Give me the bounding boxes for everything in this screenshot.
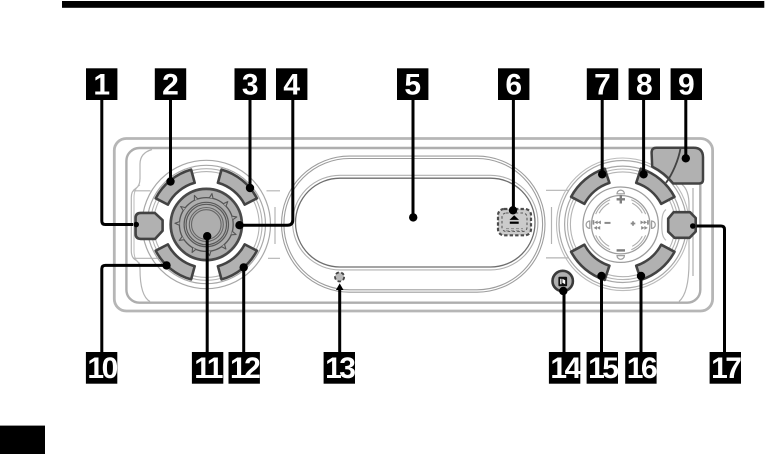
svg-text:9: 9 xyxy=(678,68,695,101)
svg-text:5: 5 xyxy=(404,68,421,101)
svg-text:13: 13 xyxy=(325,352,355,385)
svg-text:8: 8 xyxy=(636,68,653,101)
svg-text:6: 6 xyxy=(505,68,522,101)
svg-text:7: 7 xyxy=(594,68,611,101)
svg-text:11: 11 xyxy=(194,352,223,385)
svg-text:17: 17 xyxy=(711,352,741,385)
svg-text:3: 3 xyxy=(242,68,259,101)
svg-text:10: 10 xyxy=(87,352,117,385)
svg-text:4: 4 xyxy=(283,68,300,101)
svg-text:1: 1 xyxy=(93,68,110,101)
svg-text:12: 12 xyxy=(230,352,260,385)
svg-text:14: 14 xyxy=(550,352,581,385)
svg-text:15: 15 xyxy=(588,352,618,385)
svg-text:2: 2 xyxy=(162,68,179,101)
svg-text:16: 16 xyxy=(627,352,657,385)
